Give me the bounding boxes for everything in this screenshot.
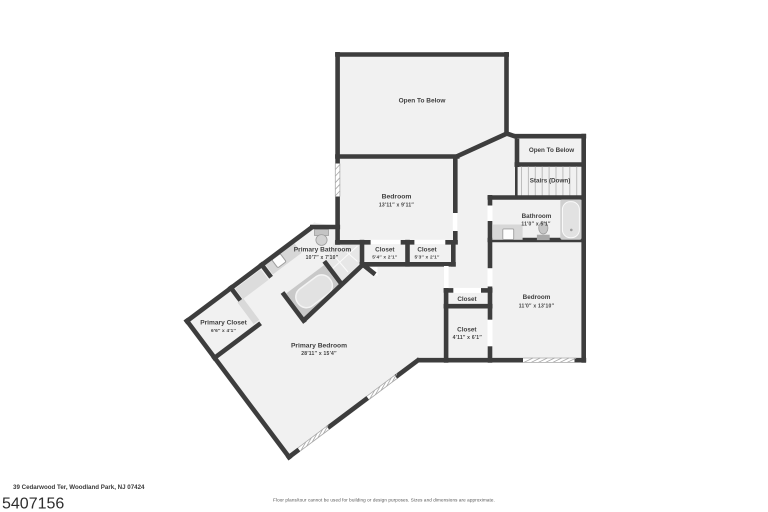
svg-text:Bathroom: Bathroom	[522, 213, 552, 220]
svg-text:39 Cedarwood Ter, Woodland Par: 39 Cedarwood Ter, Woodland Park, NJ 0742…	[13, 484, 145, 491]
svg-text:Primary Closet: Primary Closet	[200, 320, 247, 327]
svg-text:Open To Below: Open To Below	[399, 98, 447, 105]
svg-text:Bedroom: Bedroom	[523, 294, 551, 301]
svg-text:5′4″ x 2′1″: 5′4″ x 2′1″	[372, 255, 398, 261]
svg-text:13′11″ x 9′11″: 13′11″ x 9′11″	[379, 203, 415, 209]
svg-text:Floor plans/tour cannot be use: Floor plans/tour cannot be used for buil…	[273, 498, 495, 503]
svg-text:11′0″ x 5′1″: 11′0″ x 5′1″	[521, 222, 551, 228]
svg-text:Closet: Closet	[457, 296, 477, 303]
svg-text:5′3″ x 2′1″: 5′3″ x 2′1″	[414, 254, 440, 260]
svg-text:10′7″ x 7′10″: 10′7″ x 7′10″	[306, 255, 339, 261]
svg-text:Primary Bathroom: Primary Bathroom	[294, 247, 352, 254]
svg-text:Closet: Closet	[417, 247, 437, 254]
svg-text:Stairs (Down): Stairs (Down)	[530, 178, 571, 185]
svg-text:11′0″ x 13′10″: 11′0″ x 13′10″	[519, 304, 555, 310]
svg-text:4′11″ x 6′1″: 4′11″ x 6′1″	[453, 335, 483, 341]
svg-text:Bedroom: Bedroom	[382, 194, 412, 201]
svg-text:5407156: 5407156	[2, 496, 64, 512]
svg-text:28′11″ x 15′4″: 28′11″ x 15′4″	[301, 351, 337, 357]
svg-text:Closet: Closet	[457, 327, 477, 334]
svg-text:Open To Below: Open To Below	[529, 147, 574, 154]
svg-text:Closet: Closet	[375, 247, 395, 254]
svg-text:6′6″ x 4′1″: 6′6″ x 4′1″	[211, 328, 237, 334]
svg-text:Primary Bedroom: Primary Bedroom	[291, 343, 347, 350]
